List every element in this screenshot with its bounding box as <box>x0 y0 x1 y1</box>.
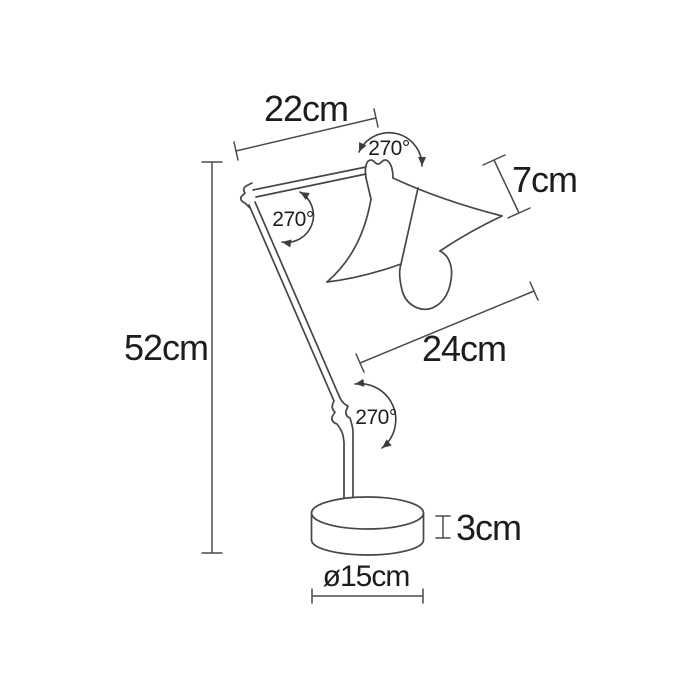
lamp-elbow-joint <box>241 183 252 208</box>
dimension-line-base-height <box>436 516 450 538</box>
label-shade-height: 7cm <box>512 159 577 200</box>
label-head-joint-angle: 270° <box>368 137 410 160</box>
lamp-upper-arm <box>253 167 366 197</box>
label-base-height: 3cm <box>456 507 521 548</box>
label-elbow-joint-angle: 270° <box>272 208 314 231</box>
label-total-height: 52cm <box>124 327 208 368</box>
lamp-shade-rim-left <box>327 264 401 282</box>
lamp-shade-top-edge <box>393 178 502 216</box>
lamp-bulb-neck <box>401 188 418 264</box>
lamp-shade-knob <box>365 160 393 178</box>
dimension-labels: 22cm 52cm 7cm 24cm 3cm ø15cm <box>124 88 577 593</box>
diagram-canvas: 22cm 52cm 7cm 24cm 3cm ø15cm 270° 270° 2… <box>0 0 700 700</box>
label-lower-arm-length: 24cm <box>422 328 506 369</box>
label-upper-arm-length: 22cm <box>264 88 348 129</box>
lamp-bulb <box>400 251 452 309</box>
lamp-base-top <box>312 497 424 529</box>
lamp-lower-joint-and-stem <box>332 398 353 498</box>
label-base-joint-angle: 270° <box>355 406 397 429</box>
lamp-lower-arm <box>249 202 340 401</box>
label-base-diameter: ø15cm <box>323 560 410 593</box>
lamp-base-side <box>312 513 424 555</box>
lamp-technical-diagram: 22cm 52cm 7cm 24cm 3cm ø15cm 270° 270° 2… <box>0 0 700 700</box>
lamp-shade-left-edge <box>327 178 371 282</box>
lamp-shade-rim-right <box>440 216 502 251</box>
angle-labels: 270° 270° 270° <box>272 137 410 429</box>
